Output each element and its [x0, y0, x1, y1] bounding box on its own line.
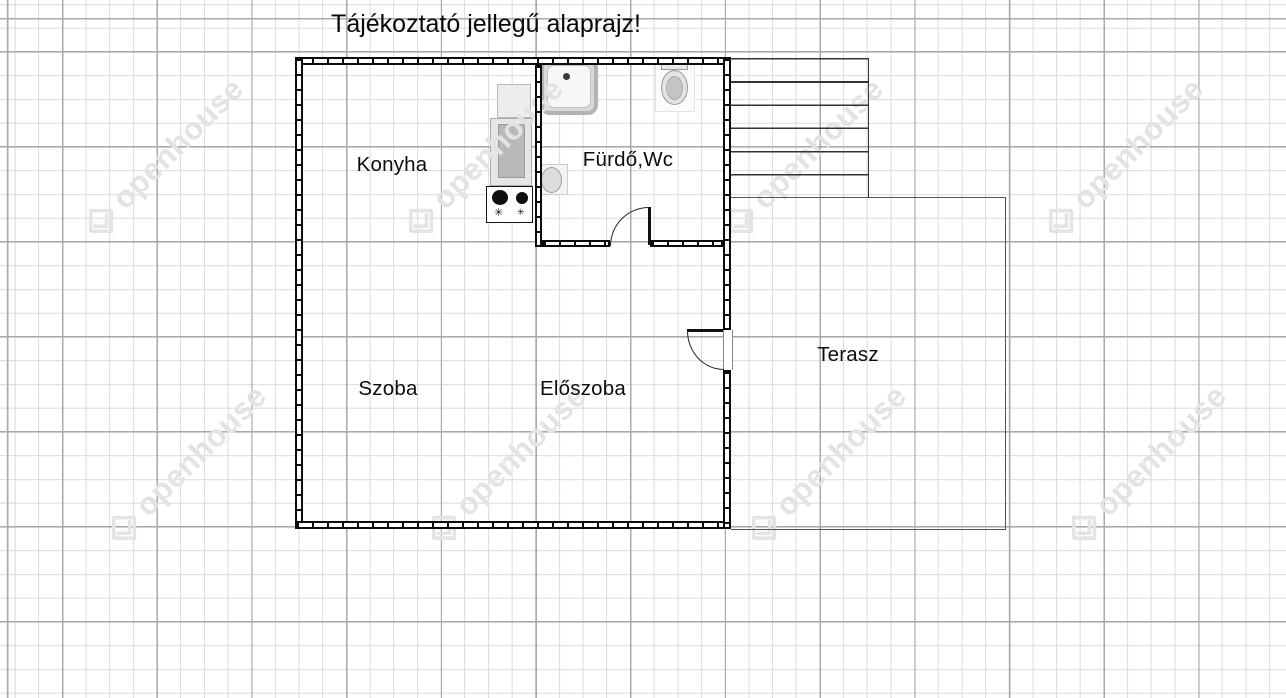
burner-knob-icon: ✳	[517, 208, 525, 217]
burner-knob-icon: ✳	[494, 208, 503, 219]
entry-door-opening	[723, 330, 733, 370]
wall-bottom	[295, 521, 731, 529]
watermark-text: openhouse	[105, 71, 251, 217]
kitchen-cabinet	[497, 84, 531, 118]
shower-tray-inner	[547, 65, 591, 108]
openhouse-logo-icon	[1050, 494, 1118, 562]
room-label-living: Szoba	[358, 377, 417, 401]
wall-kitchen-bathroom-divider	[535, 64, 542, 247]
watermark-text: openhouse	[1065, 71, 1211, 217]
page-title: Tájékoztató jellegű alaprajz!	[331, 10, 641, 39]
entry-door-arc	[687, 331, 724, 370]
toilet-bowl-inner	[666, 76, 683, 100]
floorplan-page: Tájékoztató jellegű alaprajz! openhouse …	[0, 0, 1286, 698]
wall-top	[295, 57, 731, 65]
drain-icon	[563, 73, 570, 80]
watermark: openhouse	[88, 366, 286, 564]
stairs	[731, 58, 869, 197]
openhouse-logo-icon	[67, 187, 135, 255]
room-label-hall: Előszoba	[540, 377, 626, 401]
bathroom-door-arc	[610, 207, 649, 246]
refrigerator-inner	[498, 124, 525, 178]
watermark-text: openhouse	[1088, 378, 1234, 524]
watermark: openhouse	[1025, 59, 1223, 257]
room-label-kitchen: Konyha	[357, 153, 428, 177]
wall-right-upper	[723, 57, 731, 330]
stove-burner	[492, 190, 508, 205]
openhouse-logo-icon	[90, 494, 158, 562]
stove-burner	[516, 192, 528, 204]
washbasin	[541, 167, 562, 193]
wall-left	[295, 57, 303, 529]
wall-bathroom-bottom-right	[650, 240, 723, 247]
watermark: openhouse	[65, 59, 263, 257]
openhouse-logo-icon	[1027, 187, 1095, 255]
room-label-bathroom: Fürdő,Wc	[583, 148, 673, 172]
room-label-terrace: Terasz	[817, 343, 879, 367]
openhouse-logo-icon	[387, 187, 455, 255]
watermark-text: openhouse	[128, 378, 274, 524]
watermark: openhouse	[1048, 366, 1246, 564]
wall-bathroom-bottom-left	[542, 240, 610, 247]
wall-right-lower	[723, 370, 731, 529]
